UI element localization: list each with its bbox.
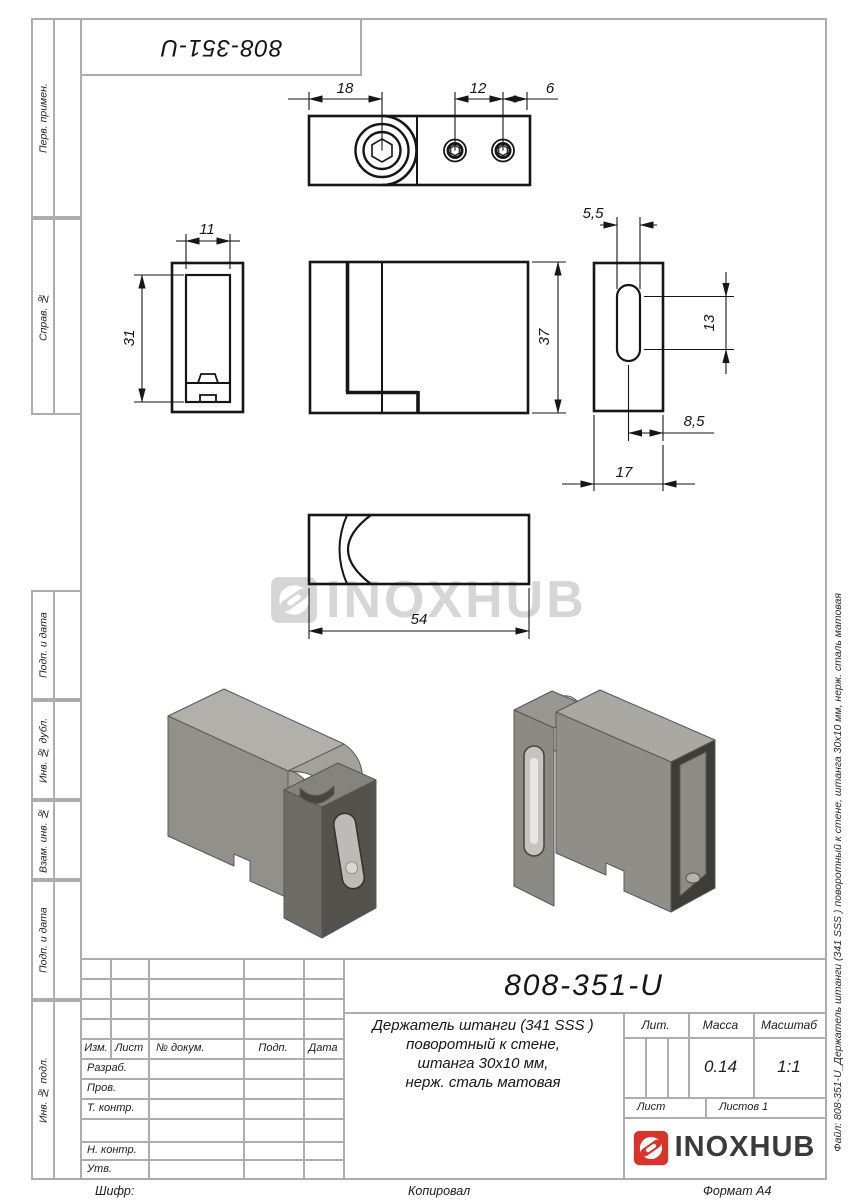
lit-label: Лит. — [623, 1012, 688, 1037]
view-top: 18 12 6 — [288, 80, 558, 185]
grid-line — [645, 1037, 647, 1097]
mass-label: Масса — [688, 1012, 753, 1037]
grid-line — [148, 960, 150, 1178]
view-bottom: 54 — [309, 515, 529, 639]
dim-slot-length: 13 — [701, 314, 718, 331]
grid-line — [303, 960, 305, 1178]
dim-screw-spacing: 12 — [470, 80, 487, 97]
part-description: Держатель штанги (341 SSS ) поворотный к… — [343, 1016, 623, 1092]
row-razrab: Разраб. — [87, 1058, 147, 1078]
row-prov: Пров. — [87, 1078, 147, 1098]
inoxhub-logo-icon — [633, 1130, 669, 1166]
scale-label: Масштаб — [753, 1012, 825, 1037]
description-line-4: нерж. сталь матовая — [343, 1073, 623, 1092]
grid-line — [705, 1097, 707, 1117]
dim-slot-width: 5,5 — [583, 205, 605, 222]
view-right-side: 5,5 13 8,5 17 — [562, 205, 734, 491]
mass-value: 0.14 — [688, 1037, 753, 1097]
grid-line — [243, 960, 245, 1178]
dim-body-length: 54 — [411, 611, 428, 628]
drawing-sheet: Перв. примен. Справ. № Подп. и дата Инв.… — [0, 0, 848, 1200]
dim-screw-edge: 6 — [546, 80, 555, 97]
dim-top-width: 18 — [337, 80, 354, 97]
row-utv: Утв. — [87, 1159, 147, 1178]
title-block: Изм. Лист № докум. Подп. Дата Разраб. Пр… — [80, 958, 827, 1180]
company-logo: INOXHUB — [623, 1117, 825, 1178]
inoxhub-logo-text: INOXHUB — [675, 1131, 816, 1164]
sheets-label: Листов 1 — [719, 1097, 825, 1117]
col-header-dokum: № докум. — [156, 1038, 243, 1058]
description-line-3: штанга 30х10 мм, — [343, 1054, 623, 1073]
dim-front-height: 37 — [536, 328, 553, 345]
col-header-data: Дата — [303, 1038, 343, 1058]
col-header-izm: Изм. — [82, 1038, 110, 1058]
grid-line — [667, 1037, 669, 1097]
row-n-kontr: Н. контр. — [87, 1141, 147, 1159]
row-t-kontr: Т. контр. — [87, 1098, 147, 1118]
view-left-side: 11 31 — [121, 221, 243, 412]
iso-view-right — [514, 690, 715, 912]
dim-slot-offset: 8,5 — [684, 413, 706, 430]
dim-side-height: 31 — [121, 330, 138, 347]
dim-plate-width: 17 — [616, 464, 633, 481]
dim-side-width: 11 — [199, 221, 215, 238]
iso-view-left — [168, 689, 376, 938]
description-line-1: Держатель штанги (341 SSS ) — [343, 1016, 623, 1035]
sheet-label: Лист — [637, 1097, 705, 1117]
col-header-list: Лист — [110, 1038, 148, 1058]
description-line-2: поворотный к стене, — [343, 1035, 623, 1054]
col-header-podp: Подп. — [243, 1038, 303, 1058]
scale-value: 1:1 — [753, 1037, 825, 1097]
view-front: 37 — [310, 262, 566, 413]
stamp-designation: 808-351-U — [343, 960, 825, 1012]
